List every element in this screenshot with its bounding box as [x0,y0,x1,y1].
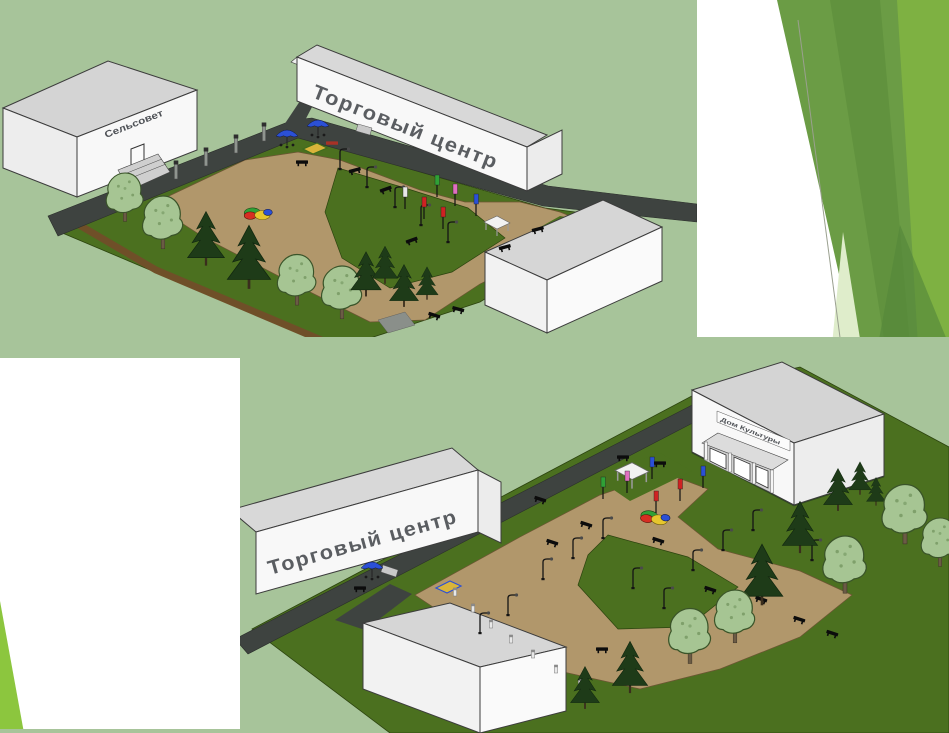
presentation-slide: Сельсовет Торговый центр [0,0,949,733]
facet-leaves-top-right [660,0,949,345]
facet-leaf-bottom-left [0,595,30,733]
bottom-edge-strip [0,729,242,733]
render-image-bottom: Торговый центр Дом Культуры [240,337,949,733]
render-image-top: Сельсовет Торговый центр [0,0,697,358]
bench [326,141,338,144]
